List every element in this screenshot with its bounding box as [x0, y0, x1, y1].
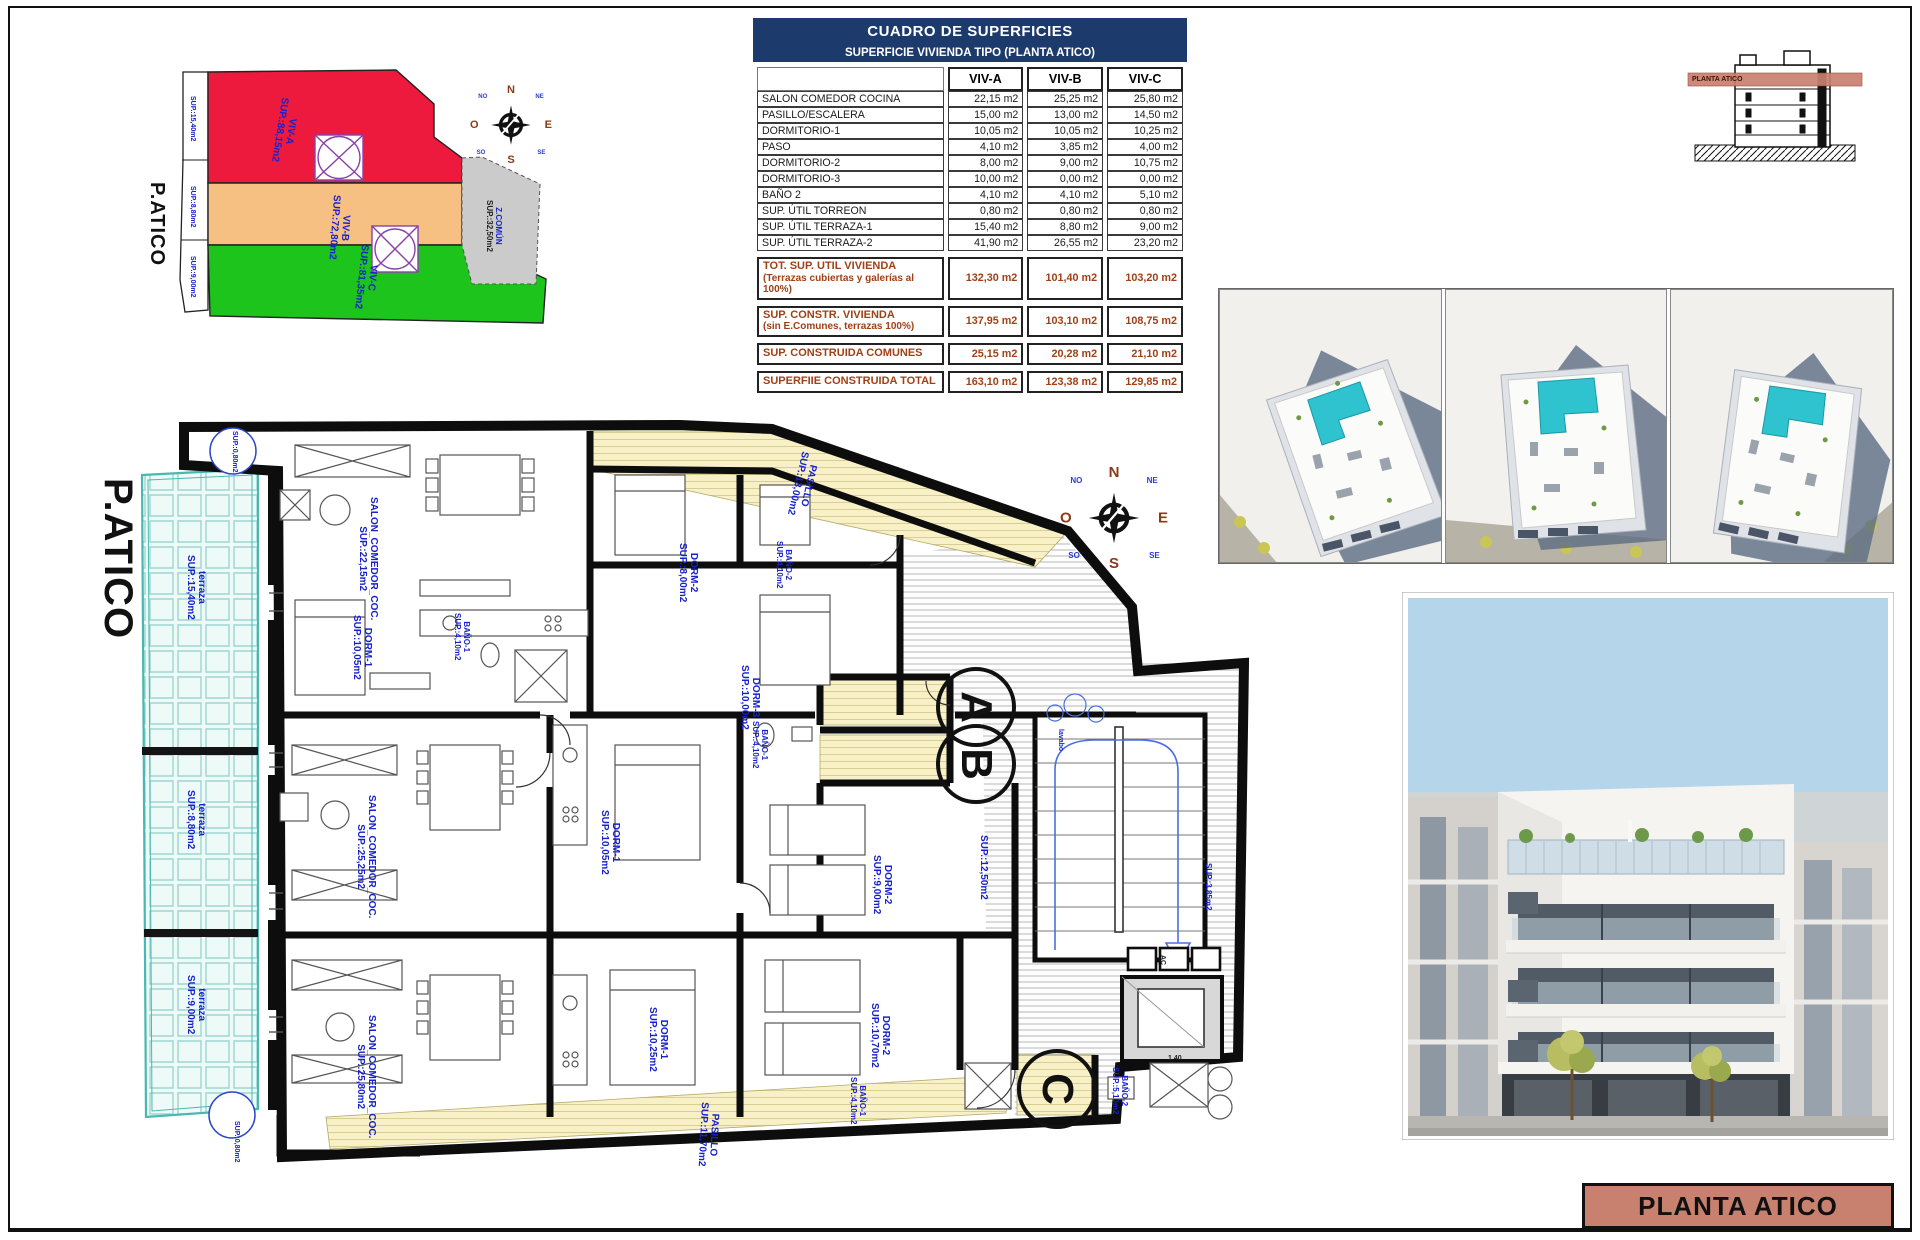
surface-row: SUP. ÚTIL TERRAZA-115,40 m28,80 m29,00 m…: [757, 219, 1183, 235]
plan-elevator: [1122, 977, 1222, 1061]
label-terraza-a: terrazaSUP.:15,40m2: [185, 555, 206, 620]
surface-table-grid: VIV-AVIV-BVIV-C SALON COMEDOR COCINA22,1…: [753, 67, 1187, 393]
label-dorm2-c: DORM-2SUP.:10,70m2: [869, 1003, 890, 1068]
building-section-thumb: PLANTA ATICO: [1680, 45, 1870, 175]
floor-plan-compass: N NE E SE S SO O NO: [1062, 466, 1166, 570]
compass-rose-icon: [489, 103, 533, 147]
surface-table-subtitle: SUPERFICIE VIVIENDA TIPO (PLANTA ATICO): [753, 44, 1187, 62]
unit-marker-c: C: [1017, 1049, 1097, 1129]
site-stair-core-1: [315, 135, 363, 180]
compass-rose-icon: [1086, 490, 1142, 546]
site-compass: N NE E SE S SO O NO: [472, 86, 550, 164]
surface-row: PASILLO/ESCALERA15,00 m213,00 m214,50 m2: [757, 107, 1183, 123]
unit-marker-b: B: [936, 724, 1016, 804]
surface-row: DORMITORIO-110,05 m210,05 m210,25 m2: [757, 123, 1183, 139]
surface-total-row: SUPERFIIE CONSTRUIDA TOTAL163,10 m2123,3…: [757, 371, 1183, 393]
surface-total-row: TOT. SUP. UTIL VIVIENDA(Terrazas cubiert…: [757, 257, 1183, 300]
neighbor-building-left: [1408, 797, 1504, 1132]
label-dim-shower: 1,40: [1168, 1055, 1182, 1063]
site-terrace-label-1: SUP.:15,40m2: [189, 96, 197, 141]
label-terraza-c: terrazaSUP.:9,00m2: [185, 975, 206, 1034]
surface-table-head: VIV-AVIV-BVIV-C: [757, 67, 1183, 91]
label-bano2-a: BAÑO-2SUP.:4,10m2: [775, 541, 792, 588]
surface-row: BAÑO 24,10 m24,10 m25,10 m2: [757, 187, 1183, 203]
label-terraza-b: terrazaSUP.:8,80m2: [185, 790, 206, 849]
label-paso-sup: SUP.:3,85m2: [1204, 863, 1213, 910]
title-block: PLANTA ATICO: [1582, 1183, 1894, 1229]
sidewalk: [1408, 1116, 1888, 1128]
site-terrace-label-2: SUP.:8,80m2: [189, 186, 197, 228]
surface-table-title: CUADRO DE SUPERFICIES: [753, 18, 1187, 44]
elevation-render: [1402, 592, 1894, 1140]
site-terrace-label-3: SUP.:9,00m2: [189, 256, 197, 298]
surface-row: DORMITORIO-310,00 m20,00 m20,00 m2: [757, 171, 1183, 187]
label-dorm1-c: DORM-1SUP.:10,25m2: [647, 1007, 668, 1072]
render-panel-3: [1670, 289, 1893, 563]
label-torreon-bottom: SUP.:0,80m2: [233, 1121, 241, 1163]
surface-row: SALON COMEDOR COCINA22,15 m225,25 m225,8…: [757, 91, 1183, 107]
surface-table-body: SALON COMEDOR COCINA22,15 m225,25 m225,8…: [757, 91, 1183, 393]
surface-total-row: SUP. CONSTR. VIVIENDA(sin E.Comunes, ter…: [757, 306, 1183, 337]
label-dorm1-b: DORM-1SUP.:10,05m2: [599, 810, 620, 875]
drawing-sheet: VIV-ASUP.:88,15m2 VIV-BSUP.:72,80m2 VIV-…: [0, 0, 1920, 1240]
label-dorm2-b: DORM-2SUP.:9,00m2: [871, 855, 892, 914]
floor-plan-title: P.ATICO: [95, 478, 140, 639]
site-label-comun: Z.COMÚNSUP.:32,50m2: [485, 200, 502, 252]
render-panels: [1218, 288, 1894, 564]
site-plan-title: P.ATICO: [145, 182, 168, 266]
main-building-facade: [1498, 784, 1794, 1128]
plan-stairwell: [1035, 715, 1205, 965]
label-hall-sup: SUP.:12,50m2: [978, 835, 989, 900]
label-bano1-a: BAÑO-1SUP.:4,10m2: [453, 613, 470, 660]
section-band-label: PLANTA ATICO: [1692, 76, 1743, 83]
plan-ac-closets: [1128, 948, 1220, 970]
surface-table: CUADRO DE SUPERFICIES SUPERFICIE VIVIEND…: [753, 18, 1187, 393]
render-panel-1: [1219, 289, 1442, 563]
label-salon-a: SALON_COMEDOR_COC.SUP.:22,15m2: [357, 497, 378, 620]
label-dorm2-a: DORM-2SUP.:8,00m2: [677, 543, 698, 602]
label-ac: AC: [1159, 955, 1167, 965]
label-dorm1-a: DORM-1SUP.:10,05m2: [351, 615, 372, 680]
label-bano2-c: BAÑO-2SUP.:5,10m2: [1111, 1067, 1128, 1114]
render-panel-2: [1445, 289, 1668, 563]
label-lavabo: lavabo: [1057, 729, 1065, 751]
label-salon-c: SALON_COMEDOR_COC.SUP.:25,80m2: [355, 1015, 376, 1138]
balcony-floors: [1498, 904, 1794, 1074]
surface-row: DORMITORIO-28,00 m29,00 m210,75 m2: [757, 155, 1183, 171]
surface-total-row: SUP. CONSTRUIDA COMUNES25,15 m220,28 m22…: [757, 343, 1183, 365]
label-bano1-c: BAÑO-1SUP.:4,10m2: [849, 1077, 866, 1124]
surface-row: PASO4,10 m23,85 m24,00 m2: [757, 139, 1183, 155]
label-torreon-top: SUP.:0,80m2: [231, 431, 239, 473]
neighbor-building-right: [1792, 842, 1888, 1132]
street: [1408, 1128, 1888, 1136]
label-salon-b: SALON_COMEDOR_COC.SUP.:25,25m2: [355, 795, 376, 918]
label-pasillo-bottom: PASILLOSUP.:11,70m2: [696, 1102, 720, 1167]
surface-row: SUP. ÚTIL TERRAZA-241,90 m226,55 m223,20…: [757, 235, 1183, 251]
surface-row: SUP. ÚTIL TORREON0,80 m20,80 m20,80 m2: [757, 203, 1183, 219]
label-bano1-b: BAÑO-1SUP.:4,10m2: [751, 721, 768, 768]
